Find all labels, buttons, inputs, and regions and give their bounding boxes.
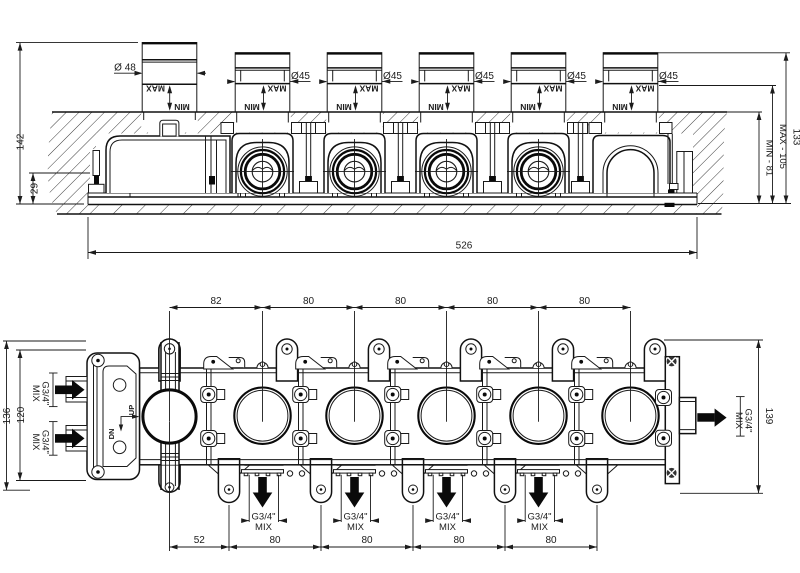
svg-text:MAX: MAX [543, 84, 562, 94]
svg-text:MIN: MIN [336, 102, 352, 112]
svg-text:G3/4": G3/4" [436, 511, 460, 522]
svg-text:MIN: MIN [244, 102, 260, 112]
svg-text:MIX: MIX [531, 522, 549, 533]
svg-text:MAX: MAX [451, 84, 470, 94]
svg-text:MAX: MAX [146, 84, 165, 94]
svg-text:Ø45: Ø45 [291, 71, 310, 82]
svg-text:80: 80 [361, 535, 373, 546]
svg-text:MAX: MAX [267, 84, 286, 94]
svg-text:120: 120 [16, 406, 27, 423]
svg-text:136: 136 [2, 407, 13, 424]
svg-text:MAX: MAX [635, 84, 654, 94]
svg-text:G3/4": G3/4" [344, 511, 368, 522]
svg-text:80: 80 [545, 535, 557, 546]
svg-text:80: 80 [303, 296, 315, 307]
svg-text:MIN: MIN [520, 102, 536, 112]
svg-text:526: 526 [456, 241, 473, 252]
svg-text:142: 142 [16, 133, 27, 150]
svg-text:Ø 48: Ø 48 [114, 63, 136, 74]
svg-text:Ø45: Ø45 [475, 71, 494, 82]
svg-text:29: 29 [30, 183, 41, 195]
svg-text:80: 80 [269, 535, 281, 546]
svg-text:MIX: MIX [347, 522, 365, 533]
svg-text:MIN: MIN [612, 102, 628, 112]
svg-text:MIX: MIX [733, 412, 744, 430]
svg-text:UP: UP [127, 405, 136, 415]
svg-text:MIX: MIX [30, 433, 41, 451]
svg-text:52: 52 [194, 535, 206, 546]
svg-text:MIX: MIX [255, 522, 273, 533]
svg-text:Ø45: Ø45 [567, 71, 586, 82]
svg-text:MIN: MIN [174, 102, 190, 112]
svg-text:139: 139 [763, 408, 774, 425]
svg-text:80: 80 [453, 535, 465, 546]
svg-text:G3/4": G3/4" [252, 511, 276, 522]
svg-text:80: 80 [395, 296, 407, 307]
svg-text:Ø45: Ø45 [383, 71, 402, 82]
svg-text:G3/4": G3/4" [528, 511, 552, 522]
svg-text:MIX: MIX [439, 522, 457, 533]
svg-text:MAX: MAX [359, 84, 378, 94]
svg-text:MIX: MIX [30, 385, 41, 403]
svg-text:80: 80 [487, 296, 499, 307]
svg-text:82: 82 [210, 296, 222, 307]
svg-text:MIN: MIN [428, 102, 444, 112]
svg-text:Ø45: Ø45 [659, 71, 678, 82]
svg-text:80: 80 [579, 296, 591, 307]
svg-text:DN: DN [107, 429, 116, 440]
svg-text:133: 133 [791, 129, 800, 146]
